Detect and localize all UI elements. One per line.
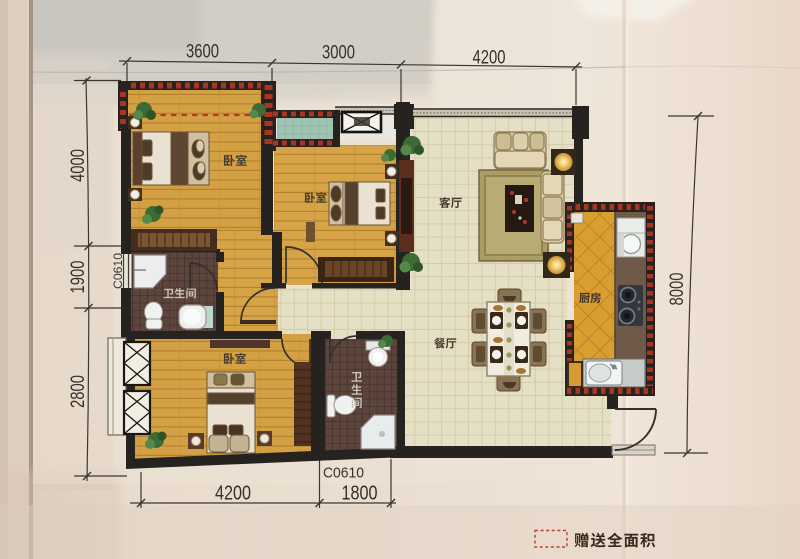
svg-text:4200: 4200 [215,483,251,505]
svg-text:1800: 1800 [342,483,378,505]
svg-text:C0610: C0610 [323,465,364,482]
svg-text:2800: 2800 [68,375,89,408]
svg-text:3000: 3000 [322,43,355,64]
svg-text:C0610: C0610 [113,253,125,289]
svg-text:4200: 4200 [473,48,506,69]
svg-text:1900: 1900 [68,261,89,294]
svg-text:8000: 8000 [666,272,688,305]
svg-text:3600: 3600 [186,42,219,63]
svg-text:4000: 4000 [68,149,89,182]
